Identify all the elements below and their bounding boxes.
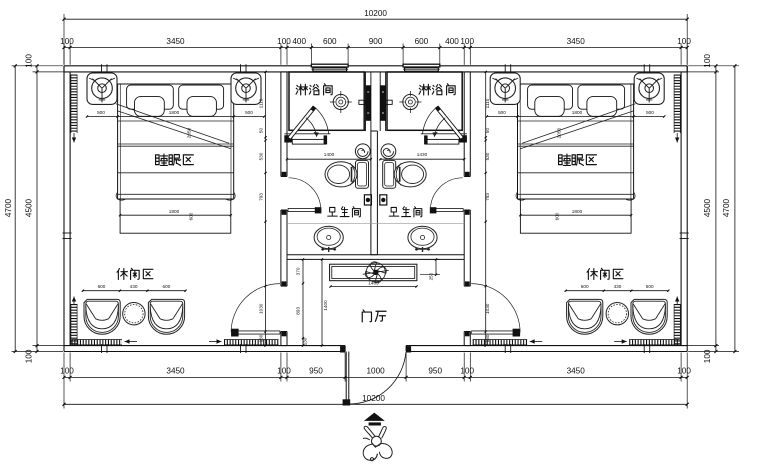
svg-text:950: 950 bbox=[309, 367, 323, 376]
svg-text:130: 130 bbox=[485, 334, 490, 342]
svg-text:1403: 1403 bbox=[368, 280, 379, 285]
svg-text:3450: 3450 bbox=[567, 37, 586, 46]
svg-text:793: 793 bbox=[258, 193, 263, 201]
svg-text:400: 400 bbox=[292, 37, 306, 46]
svg-text:400: 400 bbox=[445, 37, 459, 46]
svg-text:1800: 1800 bbox=[572, 110, 583, 115]
svg-text:100: 100 bbox=[677, 367, 691, 376]
svg-text:893: 893 bbox=[296, 307, 301, 315]
svg-text:500: 500 bbox=[646, 110, 654, 115]
svg-text:1000: 1000 bbox=[366, 367, 385, 376]
svg-text:600: 600 bbox=[415, 37, 429, 46]
svg-text:10200: 10200 bbox=[362, 394, 385, 403]
svg-text:2050: 2050 bbox=[187, 127, 192, 138]
svg-text:1800: 1800 bbox=[169, 110, 180, 115]
svg-text:130: 130 bbox=[258, 334, 263, 342]
svg-text:100: 100 bbox=[25, 349, 34, 363]
svg-text:3450: 3450 bbox=[166, 37, 185, 46]
svg-text:1800: 1800 bbox=[169, 209, 180, 214]
svg-text:430: 430 bbox=[614, 284, 622, 289]
svg-text:600: 600 bbox=[162, 284, 170, 289]
svg-text:4700: 4700 bbox=[722, 198, 731, 217]
svg-text:530: 530 bbox=[485, 152, 490, 160]
svg-text:50: 50 bbox=[258, 128, 263, 134]
svg-text:1030: 1030 bbox=[258, 303, 263, 314]
svg-text:600: 600 bbox=[646, 284, 654, 289]
svg-text:130: 130 bbox=[303, 337, 308, 345]
svg-text:100: 100 bbox=[25, 54, 34, 68]
svg-text:600: 600 bbox=[189, 212, 194, 220]
svg-text:4500: 4500 bbox=[703, 198, 712, 217]
svg-text:3450: 3450 bbox=[567, 367, 586, 376]
svg-text:500: 500 bbox=[97, 110, 105, 115]
svg-text:250: 250 bbox=[429, 272, 434, 280]
svg-text:600: 600 bbox=[555, 212, 560, 220]
svg-text:793: 793 bbox=[485, 193, 490, 201]
svg-text:4500: 4500 bbox=[25, 198, 34, 217]
svg-text:1800: 1800 bbox=[572, 209, 583, 214]
svg-text:500: 500 bbox=[245, 110, 253, 115]
svg-text:4700: 4700 bbox=[4, 198, 13, 217]
svg-text:10200: 10200 bbox=[364, 9, 387, 18]
svg-text:1400: 1400 bbox=[323, 300, 328, 311]
svg-text:100: 100 bbox=[703, 349, 712, 363]
svg-text:100: 100 bbox=[460, 37, 474, 46]
svg-text:1400: 1400 bbox=[324, 152, 335, 157]
svg-text:100: 100 bbox=[460, 367, 474, 376]
svg-text:100: 100 bbox=[677, 37, 691, 46]
svg-text:600: 600 bbox=[581, 284, 589, 289]
svg-text:3450: 3450 bbox=[166, 367, 185, 376]
svg-text:100: 100 bbox=[277, 37, 291, 46]
svg-text:1110: 1110 bbox=[485, 98, 490, 108]
svg-text:600: 600 bbox=[98, 284, 106, 289]
svg-text:1430: 1430 bbox=[417, 152, 428, 157]
svg-text:2050: 2050 bbox=[557, 127, 562, 138]
svg-text:1110: 1110 bbox=[258, 98, 263, 108]
svg-text:950: 950 bbox=[428, 367, 442, 376]
svg-text:100: 100 bbox=[703, 54, 712, 68]
svg-text:1030: 1030 bbox=[485, 303, 490, 314]
svg-text:500: 500 bbox=[498, 110, 506, 115]
svg-text:100: 100 bbox=[277, 367, 291, 376]
svg-text:430: 430 bbox=[130, 284, 138, 289]
svg-text:50: 50 bbox=[485, 128, 490, 134]
svg-text:100: 100 bbox=[60, 37, 74, 46]
svg-text:100: 100 bbox=[60, 367, 74, 376]
svg-text:370: 370 bbox=[296, 267, 301, 275]
svg-text:900: 900 bbox=[369, 37, 383, 46]
svg-text:600: 600 bbox=[323, 37, 337, 46]
svg-text:530: 530 bbox=[258, 152, 263, 160]
